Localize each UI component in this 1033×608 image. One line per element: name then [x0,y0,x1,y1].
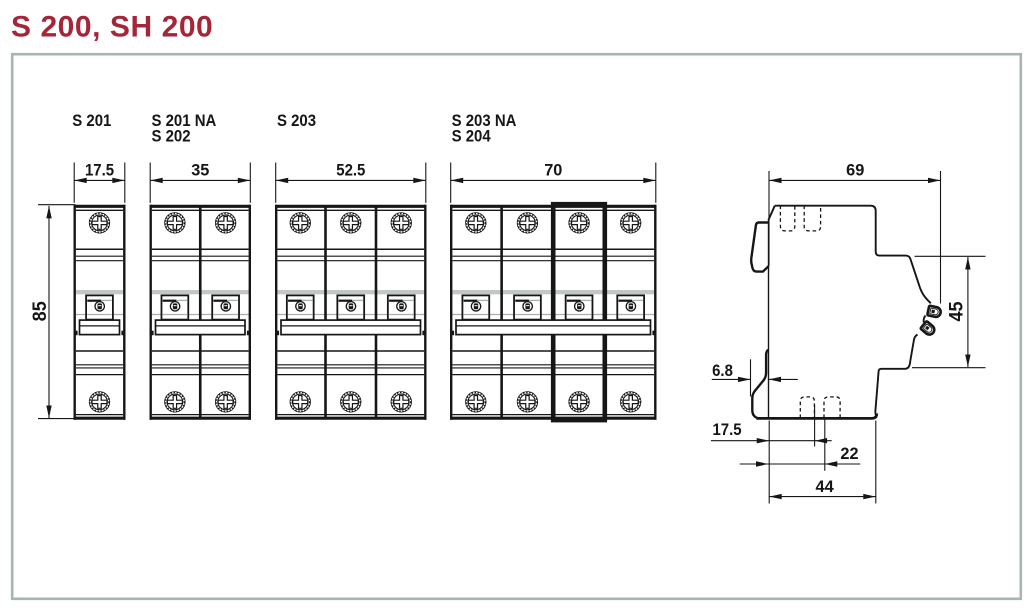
svg-text:S 204: S 204 [452,128,491,146]
svg-text:85: 85 [29,301,51,321]
svg-text:52.5: 52.5 [336,161,365,179]
svg-text:70: 70 [544,160,562,179]
svg-text:17.5: 17.5 [712,421,741,439]
svg-text:S 203: S 203 [277,112,316,130]
svg-text:S 200, SH 200: S 200, SH 200 [11,11,213,44]
svg-text:44: 44 [816,477,835,496]
svg-text:17.5: 17.5 [85,161,114,179]
svg-text:6.8: 6.8 [712,362,733,380]
svg-text:69: 69 [846,160,864,179]
svg-text:S 202: S 202 [152,128,191,146]
svg-text:45: 45 [945,301,967,321]
svg-text:22: 22 [840,444,858,463]
svg-text:S 201: S 201 [72,112,111,130]
svg-text:35: 35 [191,160,209,179]
